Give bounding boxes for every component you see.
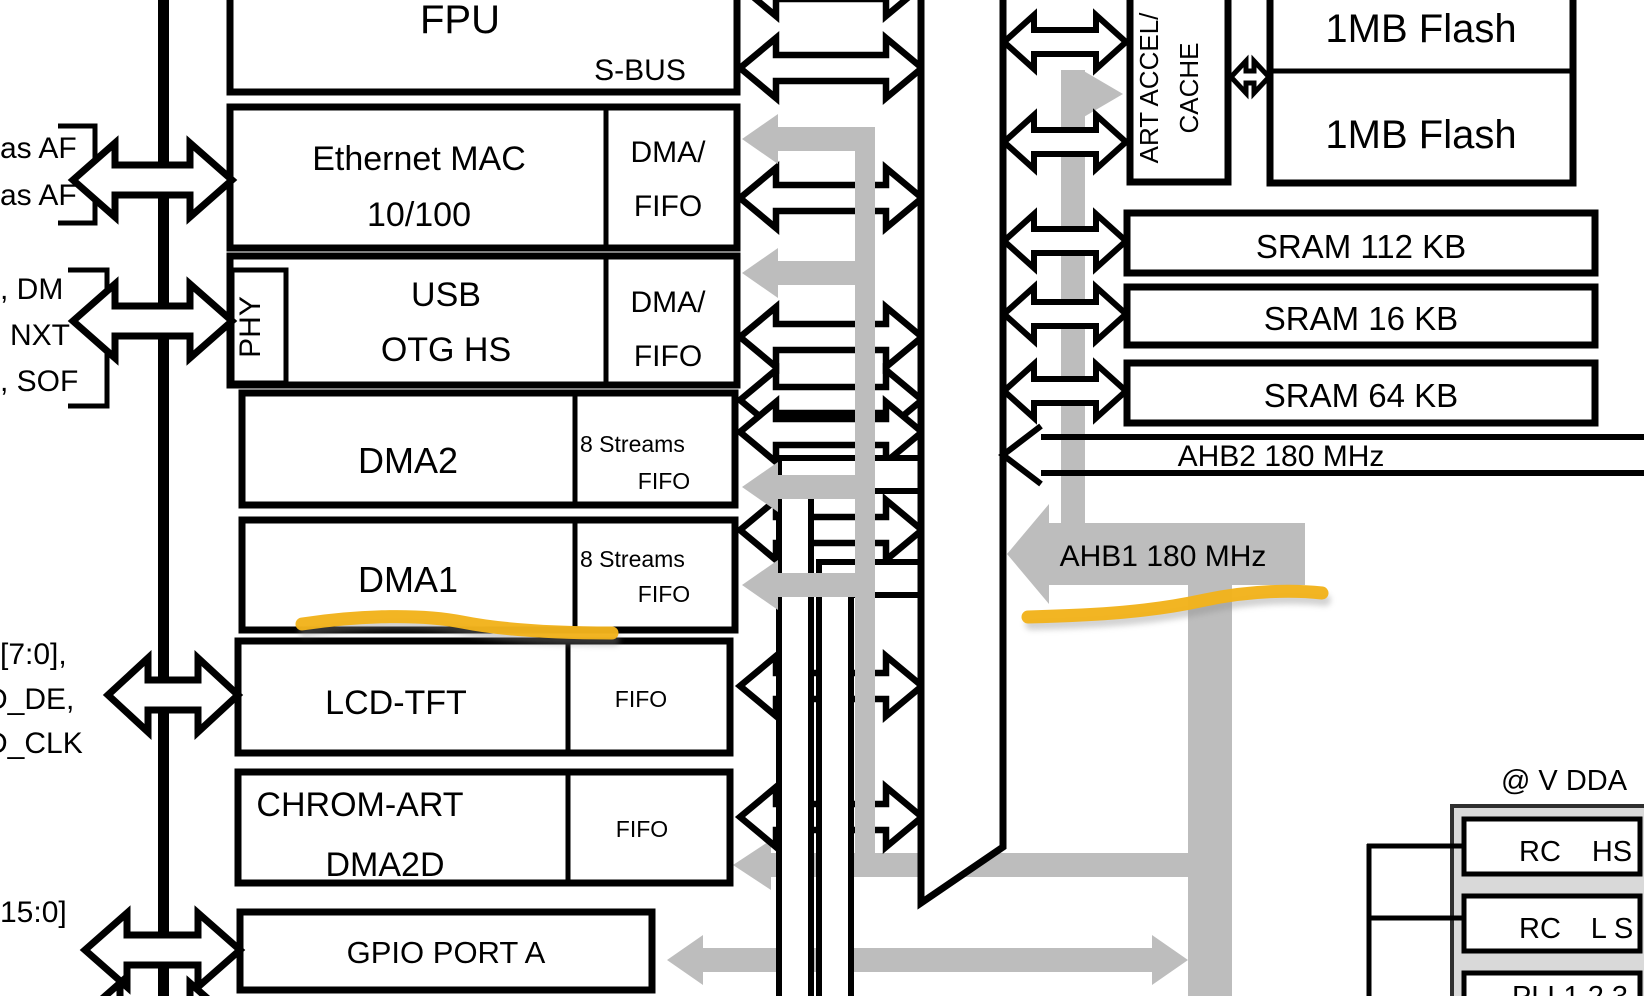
rc-ls-label-r: L S [1591, 913, 1633, 945]
pin-label: D_DE, [0, 683, 74, 716]
gray-vbar-right [1188, 577, 1232, 996]
arrow-art-a [1004, 15, 1126, 69]
cpu-title: FPU [420, 0, 500, 42]
art-accel-label2: CACHE [1174, 42, 1204, 133]
ahb2-label: AHB2 180 MHz [1178, 440, 1385, 473]
ethernet-dma-label1: DMA/ [631, 136, 707, 169]
usb-phy-label: PHY [234, 296, 267, 358]
usb-label1: USB [411, 276, 481, 314]
ethernet-dma-label2: FIFO [634, 190, 702, 223]
gray-arrow-gpio [667, 935, 1188, 985]
gpio-title: GPIO PORT A [347, 935, 546, 970]
chrom-label1: CHROM-ART [256, 786, 463, 824]
sram112-label: SRAM 112 KB [1256, 228, 1466, 265]
clock-power-cluster: @ V DDA RC HS RC L S PLL1,2,3 [1367, 765, 1644, 996]
pin-label: [7:0], [0, 638, 67, 671]
sram16-label: SRAM 16 KB [1264, 300, 1458, 337]
pin-arrow-lcd [108, 658, 238, 732]
pin-label: 15:0] [0, 896, 67, 929]
arrow-dma1 [740, 500, 922, 560]
pin-arrow-bottom-partial [78, 983, 232, 996]
ethernet-label2: 10/100 [367, 196, 471, 234]
dma1-streams-label: 8 Streams [580, 546, 685, 572]
chrom-label2: DMA2D [325, 846, 444, 884]
pin-label: as AF [0, 132, 77, 165]
usb-dma-label2: FIFO [634, 340, 702, 373]
arrow-sbus [740, 38, 922, 98]
ethernet-label1: Ethernet MAC [312, 140, 526, 178]
sbus-label: S-BUS [594, 54, 686, 87]
pin-arrow-usb [73, 284, 232, 358]
bus-matrix [921, 0, 1003, 903]
usb-dma-label1: DMA/ [631, 286, 707, 319]
rc-hs-label-l: RC [1519, 836, 1561, 868]
pin-label: as AF [0, 179, 77, 212]
rc-ls-label-l: RC [1519, 913, 1561, 945]
pin-label: , SOF [0, 365, 78, 398]
pin-labels: as AF as AF , DM NXT , SOF [7:0], D_DE, … [0, 126, 107, 929]
peripheral-blocks: FPU S-BUS Ethernet MAC 10/100 DMA/ FIFO … [230, 0, 737, 990]
pin-label: D_CLK [0, 727, 83, 760]
pin-rail [158, 0, 169, 996]
flash2-label: 1MB Flash [1325, 113, 1516, 157]
arrow-usb [740, 307, 922, 367]
usb-label2: OTG HS [381, 331, 511, 369]
memory-blocks: ART ACCEL/ CACHE 1MB Flash 1MB Flash SRA… [1127, 0, 1595, 423]
arrow-top-partial [740, 0, 922, 16]
mcu-block-diagram: as AF as AF , DM NXT , SOF [7:0], D_DE, … [0, 0, 1644, 996]
vdda-label: @ V DDA [1501, 765, 1628, 797]
pin-label: NXT [10, 319, 70, 352]
dma1-fifo-label: FIFO [638, 581, 690, 607]
dma2-fifo-label: FIFO [638, 468, 690, 494]
arrow-ethernet [740, 168, 922, 228]
gray-vbar-left [855, 127, 875, 877]
sram64-label: SRAM 64 KB [1264, 377, 1458, 414]
gray-arrowhead-art [1082, 70, 1123, 118]
lcd-fifo-label: FIFO [615, 686, 667, 712]
dma1-box [242, 520, 735, 630]
ahb1-label: AHB1 180 MHz [1060, 540, 1267, 573]
pll-label: PLL1,2,3 [1512, 981, 1628, 996]
dma2-streams-label: 8 Streams [580, 431, 685, 457]
arrow-art-flash [1231, 61, 1269, 93]
art-accel-label1: ART ACCEL/ [1134, 12, 1164, 164]
chrom-fifo-label: FIFO [616, 816, 668, 842]
pin-label: , DM [0, 273, 63, 306]
dma2-title: DMA2 [358, 440, 458, 481]
flash1-label: 1MB Flash [1325, 7, 1516, 51]
rc-hs-label-r: HS [1592, 836, 1632, 868]
lcd-title: LCD-TFT [325, 684, 467, 722]
dma1-title: DMA1 [358, 559, 458, 600]
